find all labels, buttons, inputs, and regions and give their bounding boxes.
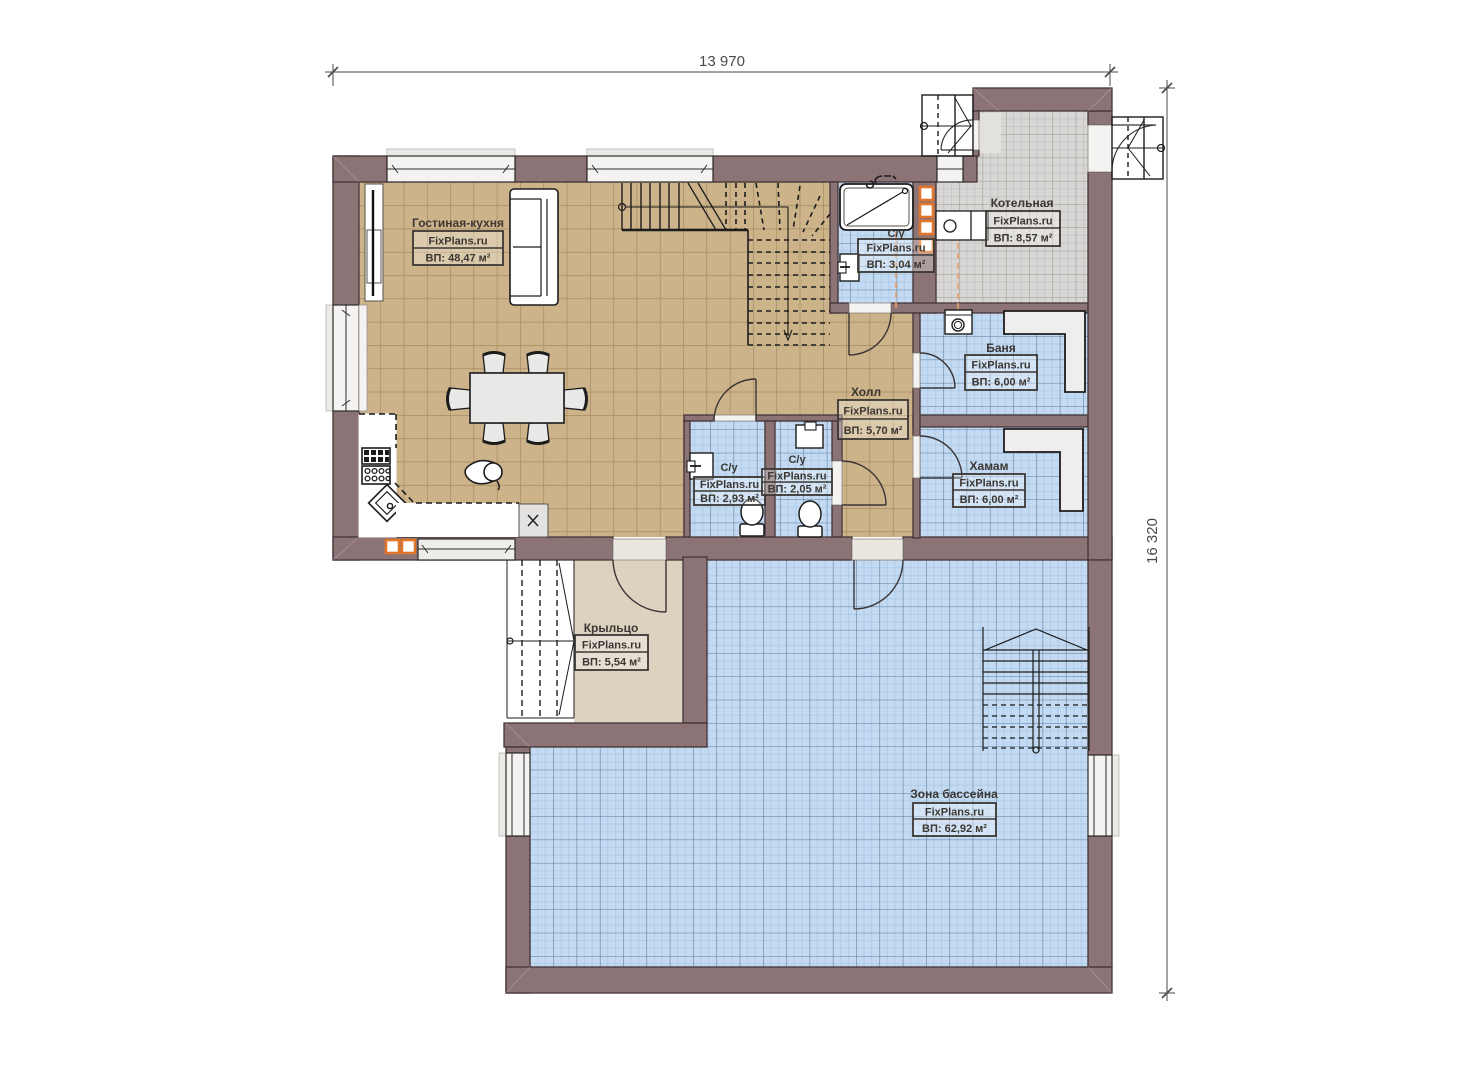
svg-text:Гостиная-кухня: Гостиная-кухня [412,216,504,230]
svg-text:FixPlans.ru: FixPlans.ru [582,640,641,652]
svg-text:FixPlans.ru: FixPlans.ru [428,236,487,248]
svg-text:ВП: 62,92 м²: ВП: 62,92 м² [922,823,987,835]
svg-text:FixPlans.ru: FixPlans.ru [866,243,925,255]
svg-text:С/у: С/у [788,454,806,466]
svg-text:FixPlans.ru: FixPlans.ru [959,478,1018,490]
svg-text:Холл: Холл [851,385,881,399]
svg-text:FixPlans.ru: FixPlans.ru [925,807,984,819]
svg-text:Крыльцо: Крыльцо [584,621,639,635]
svg-text:ВП: 5,70 м²: ВП: 5,70 м² [844,425,903,437]
svg-text:FixPlans.ru: FixPlans.ru [700,479,759,491]
svg-text:С/у: С/у [720,462,738,474]
svg-text:FixPlans.ru: FixPlans.ru [843,406,902,418]
svg-text:FixPlans.ru: FixPlans.ru [767,471,826,483]
svg-text:ВП: 48,47 м²: ВП: 48,47 м² [426,253,491,265]
svg-text:Хамам: Хамам [970,459,1009,473]
svg-text:ВП: 3,04 м²: ВП: 3,04 м² [867,259,926,271]
svg-text:ВП: 8,57 м²: ВП: 8,57 м² [994,233,1053,245]
svg-text:ВП: 2,05 м²: ВП: 2,05 м² [768,484,827,496]
svg-text:FixPlans.ru: FixPlans.ru [971,360,1030,372]
svg-text:ВП: 6,00 м²: ВП: 6,00 м² [972,377,1031,389]
svg-text:13 970: 13 970 [699,53,745,70]
svg-text:ВП: 2,93 м²: ВП: 2,93 м² [700,493,759,505]
svg-text:Баня: Баня [986,341,1016,355]
svg-text:FixPlans.ru: FixPlans.ru [993,216,1052,228]
svg-text:Котельная: Котельная [991,196,1054,210]
svg-text:ВП: 6,00 м²: ВП: 6,00 м² [960,494,1019,506]
svg-text:16 320: 16 320 [1144,518,1161,564]
svg-text:Зона бассейна: Зона бассейна [910,787,998,801]
svg-text:ВП: 5,54 м²: ВП: 5,54 м² [582,657,641,669]
